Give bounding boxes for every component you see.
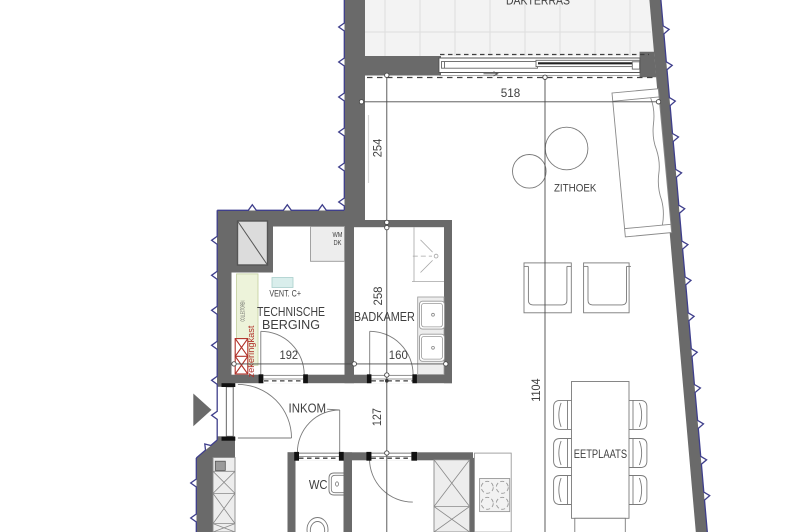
svg-text:WC: WC: [309, 478, 328, 492]
svg-text:254: 254: [371, 138, 385, 157]
svg-text:DK: DK: [334, 238, 342, 247]
svg-text:COLLECTOREN: COLLECTOREN: [241, 300, 247, 321]
svg-text:zekeringkast: zekeringkast: [246, 325, 257, 377]
svg-text:192: 192: [280, 348, 299, 362]
svg-text:EETPLAATS: EETPLAATS: [574, 447, 627, 461]
svg-text:VENT. C+: VENT. C+: [269, 289, 301, 300]
svg-text:258: 258: [371, 286, 385, 305]
svg-text:160: 160: [389, 348, 408, 362]
svg-text:ZITHOEK: ZITHOEK: [554, 183, 597, 195]
svg-text:INKOM: INKOM: [289, 401, 327, 415]
svg-text:518: 518: [501, 86, 521, 100]
svg-text:DAKTERRAS: DAKTERRAS: [506, 0, 570, 8]
svg-text:1104: 1104: [529, 378, 543, 402]
svg-text:BADKAMER: BADKAMER: [354, 310, 415, 324]
svg-text:BERGING: BERGING: [262, 318, 320, 332]
svg-text:127: 127: [370, 408, 384, 426]
